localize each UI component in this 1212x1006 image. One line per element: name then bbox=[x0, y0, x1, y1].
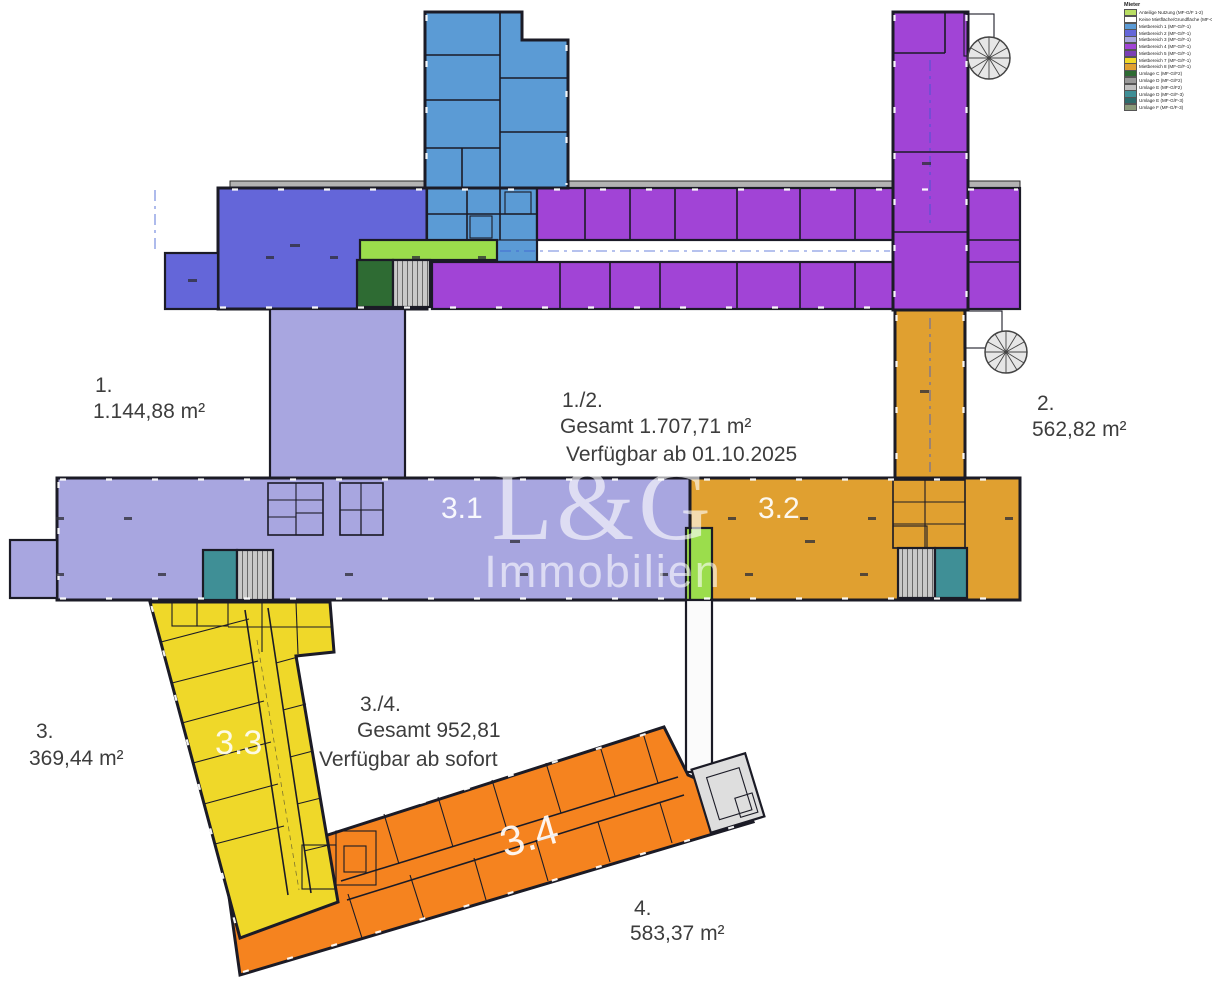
legend-item-label: Mietbereich 8 (MF-G/F-1) bbox=[1139, 64, 1191, 69]
legend-item: Anteilige Nutzung (MF-G/F 1-2) bbox=[1124, 10, 1210, 15]
legend-item: Mietbereich 5 (MF-G/F-1) bbox=[1124, 51, 1210, 56]
area12-total: Gesamt 1.707,71 m² bbox=[560, 415, 751, 438]
legend-item: Umlage C (MF-G/F2) bbox=[1124, 71, 1210, 76]
area3-id: 3. bbox=[36, 720, 54, 743]
area12-availability: Verfügbar ab 01.10.2025 bbox=[566, 443, 797, 466]
legend-item: Umlage D (MF-G/F2) bbox=[1124, 78, 1210, 83]
area1-id: 1. bbox=[95, 374, 113, 397]
watermark-subtitle: Immobilien bbox=[448, 546, 758, 598]
area3-size: 369,44 m² bbox=[29, 747, 124, 770]
area12-id: 1./2. bbox=[562, 389, 603, 412]
legend-item-label: Keine Mietfläche/Grundfläche (MF-G/F-0) bbox=[1139, 17, 1212, 22]
stairwell-center bbox=[393, 260, 430, 307]
area34-id: 3./4. bbox=[360, 693, 401, 716]
legend-item-label: Umlage D (MF-G/F-3) bbox=[1139, 92, 1184, 97]
section-label-31: 3.1 bbox=[441, 492, 483, 526]
legend-item: Umlage E (MF-G/F2) bbox=[1124, 85, 1210, 90]
top-blue-wing bbox=[425, 12, 568, 188]
legend-item-label: Mietbereich 3 (MF-G/F-1) bbox=[1139, 37, 1191, 42]
yellow-wing-33 bbox=[150, 602, 338, 938]
spiral-staircase-mid bbox=[985, 331, 1027, 373]
legend-item: Mietbereich 8 (MF-G/F-1) bbox=[1124, 64, 1210, 69]
legend-item: Mietbereich 4 (MF-G/F-1) bbox=[1124, 44, 1210, 49]
legend-item-label: Umlage E (MF-G/F-3) bbox=[1139, 98, 1183, 103]
area2-size: 562,82 m² bbox=[1032, 418, 1127, 441]
connector-corridor bbox=[686, 600, 712, 772]
stair-core-green-room bbox=[357, 260, 393, 307]
legend-item: Mietbereich 7 (MF-G/F-1) bbox=[1124, 57, 1210, 62]
section-label-33: 3.3 bbox=[215, 724, 262, 763]
area4-id: 4. bbox=[634, 897, 652, 920]
legend-item-label: Umlage D (MF-G/F2) bbox=[1139, 78, 1182, 83]
legend-item: Mietbereich 3 (MF-G/F-1) bbox=[1124, 37, 1210, 42]
stairwell-teal-room bbox=[203, 550, 237, 600]
legend-item-label: Umlage C (MF-G/F2) bbox=[1139, 71, 1182, 76]
area2-id: 2. bbox=[1037, 392, 1055, 415]
legend-item: Mietbereich 1 (MF-G/F-1) bbox=[1124, 24, 1210, 29]
legend-item-label: Mietbereich 7 (MF-G/F-1) bbox=[1139, 58, 1191, 63]
legend-item: Mietbereich 2 (MF-G/F-1) bbox=[1124, 30, 1210, 35]
legend-item-label: Mietbereich 1 (MF-G/F-1) bbox=[1139, 24, 1191, 29]
stairwell-31 bbox=[237, 550, 273, 600]
area34-total: Gesamt 952,81 bbox=[357, 719, 501, 742]
floorplan-page: L&G Immobilien 3.1 3.2 3.3 3.4 1. 1.144,… bbox=[0, 0, 1212, 1006]
stairwell-32 bbox=[898, 548, 935, 598]
spiral-staircase-top bbox=[968, 37, 1010, 79]
area34-availability: Verfügbar ab sofort bbox=[319, 748, 498, 771]
legend-items: Anteilige Nutzung (MF-G/F 1-2)Keine Miet… bbox=[1124, 10, 1210, 110]
legend-item: Umlage D (MF-G/F-3) bbox=[1124, 91, 1210, 96]
legend-item-label: Mietbereich 2 (MF-G/F-1) bbox=[1139, 31, 1191, 36]
legend-item-label: Umlage F (MF-G/F-3) bbox=[1139, 105, 1183, 110]
legend-item: Umlage E (MF-G/F-3) bbox=[1124, 98, 1210, 103]
legend-title: Mieter bbox=[1124, 2, 1210, 8]
area4-size: 583,37 m² bbox=[630, 922, 725, 945]
legend-item-label: Umlage E (MF-G/F2) bbox=[1139, 85, 1182, 90]
legend-item: Keine Mietfläche/Grundfläche (MF-G/F-0) bbox=[1124, 17, 1210, 22]
legend-item: Umlage F (MF-G/F-3) bbox=[1124, 105, 1210, 110]
legend-item-label: Anteilige Nutzung (MF-G/F 1-2) bbox=[1139, 10, 1203, 15]
legend: Mieter Anteilige Nutzung (MF-G/F 1-2)Kei… bbox=[1124, 2, 1210, 112]
section-label-32: 3.2 bbox=[758, 492, 800, 526]
legend-item-label: Mietbereich 4 (MF-G/F-1) bbox=[1139, 44, 1191, 49]
legend-item-label: Mietbereich 5 (MF-G/F-1) bbox=[1139, 51, 1191, 56]
right-amber-band bbox=[895, 310, 1002, 480]
area1-size: 1.144,88 m² bbox=[93, 400, 205, 423]
legend-color-chip bbox=[1124, 104, 1137, 111]
